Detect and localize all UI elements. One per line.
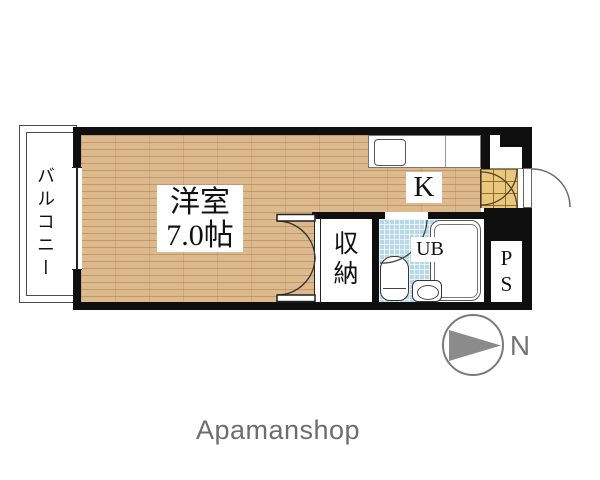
wall: [481, 127, 490, 169]
main-room-name: 洋室: [170, 186, 230, 219]
wall: [312, 212, 385, 219]
entrance-door-swing: [532, 169, 570, 207]
pipe-space-label: P S: [491, 243, 522, 299]
counter-divider: [445, 136, 446, 167]
entrance-door: [523, 168, 532, 208]
wall: [73, 127, 532, 135]
pipe-space-letter-p: P: [501, 245, 513, 271]
window-glass-line: [76, 168, 78, 269]
toilet: [380, 256, 409, 301]
balcony-label: バルコニー: [31, 148, 59, 298]
compass-north-arrow: [449, 330, 501, 361]
kitchen-label: K: [406, 172, 442, 203]
floor-plan: 洋室 7.0帖 K UB P S 収納 バルコニー N Apamanshop: [0, 0, 600, 480]
wash-basin-bowl: [417, 285, 439, 300]
pipe-space-letter-s: S: [501, 271, 513, 297]
balcony-window: [72, 167, 82, 270]
compass-circle: [443, 315, 503, 375]
wall: [428, 212, 484, 219]
wall: [484, 208, 532, 241]
wall: [372, 219, 379, 302]
entrance-tile-floor: [480, 169, 519, 208]
compass-north-label: N: [505, 331, 535, 361]
wall: [484, 208, 491, 302]
wash-basin: [412, 280, 442, 302]
wall: [500, 135, 524, 147]
kitchen-counter: [368, 135, 481, 168]
closet-label: 収納: [326, 220, 360, 300]
kitchen-sink: [374, 139, 406, 166]
main-room-label: 洋室 7.0帖: [157, 185, 243, 252]
closet-door-frame-line: [320, 219, 321, 302]
toilet-tank-line: [383, 288, 406, 289]
main-room-size: 7.0帖: [166, 219, 234, 252]
wall: [73, 302, 532, 310]
brand-watermark: Apamanshop: [128, 413, 428, 447]
unit-bath-label: UB: [411, 237, 449, 262]
